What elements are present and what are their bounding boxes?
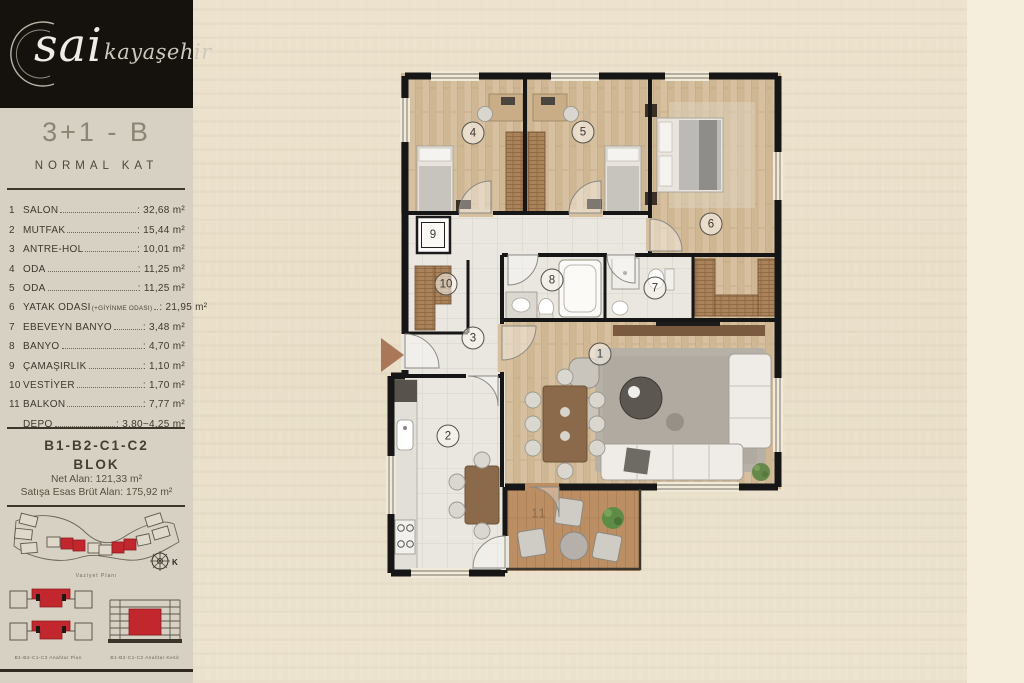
room-list-row: 10VESTİYER: 1,70 m² <box>9 372 185 391</box>
key-plan-diagram <box>8 586 96 652</box>
brand-logo: sai kayaşehir <box>0 0 193 108</box>
dotted-leader <box>154 309 158 310</box>
plan-room-label-5: 5 <box>572 121 595 144</box>
divider <box>7 505 185 507</box>
plan-room-label-8: 8 <box>541 269 564 292</box>
room-area-value: : 10,01 m² <box>137 244 185 255</box>
dotted-leader <box>62 348 142 349</box>
room-list-row: 2MUTFAK: 15,44 m² <box>9 216 185 235</box>
brochure-page: sai kayaşehir 3+1 - B NORMAL KAT 1SALON:… <box>0 0 1024 683</box>
room-list-row: 1SALON: 32,68 m² <box>9 197 185 216</box>
room-number: 7 <box>9 322 23 333</box>
room-area-value: : 3,48 m² <box>143 322 185 333</box>
sidebar-bottom-rule <box>0 669 193 672</box>
room-list-row: 11BALKON: 7,77 m² <box>9 391 185 410</box>
room-area-value: : 1,10 m² <box>143 361 185 372</box>
block-title: B1-B2-C1-C2 BLOK <box>0 437 193 475</box>
room-number: 2 <box>9 225 23 236</box>
room-area-value: : 32,68 m² <box>137 205 185 216</box>
room-number: 1 <box>9 205 23 216</box>
compass-icon <box>150 551 170 571</box>
room-name: SALON <box>23 205 58 216</box>
dotted-leader <box>77 387 142 388</box>
room-area-value: : 4,70 m² <box>143 341 185 352</box>
dotted-leader <box>48 271 137 272</box>
divider <box>7 427 185 429</box>
room-number: 10 <box>9 380 23 391</box>
plan-room-label-2: 2 <box>437 425 460 448</box>
divider <box>7 188 185 190</box>
plan-room-label-11: 11 <box>531 506 547 521</box>
key-section-caption: B1-B2-C1-C2 Anahtar Kesit <box>97 656 194 661</box>
room-name-note: (+GİYİNME ODASI) <box>92 305 153 313</box>
room-name: BANYO <box>23 341 60 352</box>
room-area-value: : 7,77 m² <box>143 399 185 410</box>
room-area-value: : 1,70 m² <box>143 380 185 391</box>
room-list-row: 4ODA: 11,25 m² <box>9 255 185 274</box>
dotted-leader <box>67 406 141 407</box>
key-captions: B1-B2-C1-C2 Anahtar Plan B1-B2-C1-C2 Ana… <box>0 656 193 661</box>
room-list-row: 6YATAK ODASI(+GİYİNME ODASI): 21,95 m² <box>9 294 185 313</box>
dotted-leader <box>48 290 137 291</box>
room-name: YATAK ODASI <box>23 302 91 313</box>
room-number: 8 <box>9 341 23 352</box>
net-area-line: Net Alan: 121,33 m² <box>0 474 193 485</box>
room-number: 9 <box>9 361 23 372</box>
room-name: BALKON <box>23 399 65 410</box>
room-name: MUTFAK <box>23 225 65 236</box>
dotted-leader <box>67 232 136 233</box>
room-number: 4 <box>9 264 23 275</box>
floor-plan-drawing <box>373 68 803 593</box>
room-number: 3 <box>9 244 23 255</box>
block-line2: BLOK <box>73 457 119 472</box>
logo-sub-text: kayaşehir <box>104 40 212 64</box>
room-name: ODA <box>23 283 46 294</box>
room-area-value: : 11,25 m² <box>138 283 185 294</box>
room-name: ANTRE-HOL <box>23 244 83 255</box>
plan-room-label-3: 3 <box>462 327 485 350</box>
room-list-row: 9ÇAMAŞIRLIK: 1,10 m² <box>9 352 185 371</box>
site-plan-map: K <box>6 509 187 573</box>
room-number: 6 <box>9 302 23 313</box>
room-number: 11 <box>9 399 23 410</box>
plan-room-label-1: 1 <box>589 343 612 366</box>
room-name: ÇAMAŞIRLIK <box>23 361 87 372</box>
room-list-row: 5ODA: 11,25 m² <box>9 275 185 294</box>
room-area-value: : 15,44 m² <box>137 225 185 236</box>
gross-area-line: Satışa Esas Brüt Alan: 175,92 m² <box>0 487 193 498</box>
unit-type-title: 3+1 - B <box>0 117 193 148</box>
plan-room-label-10: 10 <box>435 273 458 296</box>
logo-brand-text: sai <box>34 22 103 68</box>
dotted-leader <box>60 212 136 213</box>
dotted-leader <box>114 329 142 330</box>
site-plan-caption: Vaziyet Planı <box>0 573 193 579</box>
room-area-value: : 21,95 m² <box>159 302 207 313</box>
room-list-row: 3ANTRE-HOL: 10,01 m² <box>9 236 185 255</box>
room-area-value: : 11,25 m² <box>138 264 185 275</box>
plan-room-label-7: 7 <box>644 277 667 300</box>
plan-room-label-6: 6 <box>700 213 723 236</box>
room-list-row: 8BANYO: 4,70 m² <box>9 333 185 352</box>
block-line1: B1-B2-C1-C2 <box>44 438 149 453</box>
room-number: 5 <box>9 283 23 294</box>
floor-plan: 1234567891011 <box>373 68 803 593</box>
dotted-leader <box>85 251 135 252</box>
room-list-row: 7EBEVEYN BANYO: 3,48 m² <box>9 313 185 332</box>
compass-label: K <box>172 558 178 567</box>
room-area-list: 1SALON: 32,68 m²2MUTFAK: 15,44 m²3ANTRE-… <box>9 197 185 430</box>
key-plan-caption: B1-B2-C1-C2 Anahtar Plan <box>0 656 97 661</box>
floor-label: NORMAL KAT <box>0 160 193 172</box>
room-name: VESTİYER <box>23 380 75 391</box>
entrance-arrow-icon <box>381 338 404 372</box>
dotted-leader <box>89 368 142 369</box>
room-name: ODA <box>23 264 46 275</box>
plan-room-label-4: 4 <box>462 122 485 145</box>
room-name: EBEVEYN BANYO <box>23 322 112 333</box>
info-sidebar: sai kayaşehir 3+1 - B NORMAL KAT 1SALON:… <box>0 0 193 683</box>
key-section-diagram <box>104 592 186 648</box>
page-margin-strip <box>967 0 1024 683</box>
plan-room-label-9: 9 <box>421 222 445 248</box>
